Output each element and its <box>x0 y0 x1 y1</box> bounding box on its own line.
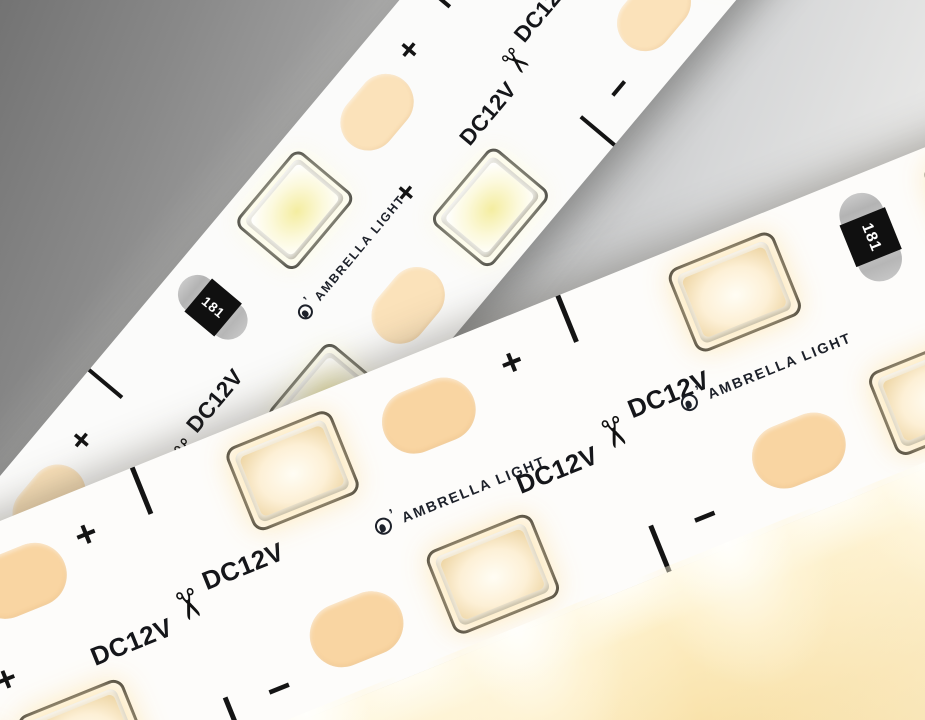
resistor-band: 181 <box>840 207 902 267</box>
cut-line <box>414 0 450 8</box>
cut-line <box>223 696 246 720</box>
cut-line <box>130 465 153 514</box>
led-die <box>445 161 536 254</box>
led-die <box>249 163 340 256</box>
minus-mark: − <box>598 69 640 109</box>
solder-pad <box>360 255 456 355</box>
solder-pad <box>300 582 413 678</box>
led-die <box>440 528 546 621</box>
solder-pad <box>0 533 76 629</box>
led-chip <box>233 418 351 523</box>
resistor-code: 181 <box>198 293 227 321</box>
led-die <box>681 246 787 339</box>
resistor: 181 <box>170 267 256 348</box>
cut-line <box>555 293 578 342</box>
minus-mark: − <box>686 493 724 541</box>
resistor-code: 181 <box>857 220 885 254</box>
led-die <box>239 425 345 518</box>
resistor-band: 181 <box>184 279 241 336</box>
led-chip <box>876 343 925 448</box>
led-chip <box>675 240 793 345</box>
solder-pad <box>606 0 702 62</box>
solder-pad <box>372 368 485 464</box>
led-die <box>31 693 137 720</box>
minus-mark: − <box>260 665 298 713</box>
resistor: 181 <box>833 186 909 288</box>
plus-mark: + <box>0 658 22 699</box>
cut-line <box>87 367 123 398</box>
cut-line <box>580 116 616 147</box>
led-chip <box>433 522 551 627</box>
product-photo: ++DC12V✂DC12V−181’AMBRELLA LIGHT++DC12V✂… <box>0 0 925 720</box>
led-die <box>882 349 925 442</box>
solder-pad <box>742 403 855 499</box>
